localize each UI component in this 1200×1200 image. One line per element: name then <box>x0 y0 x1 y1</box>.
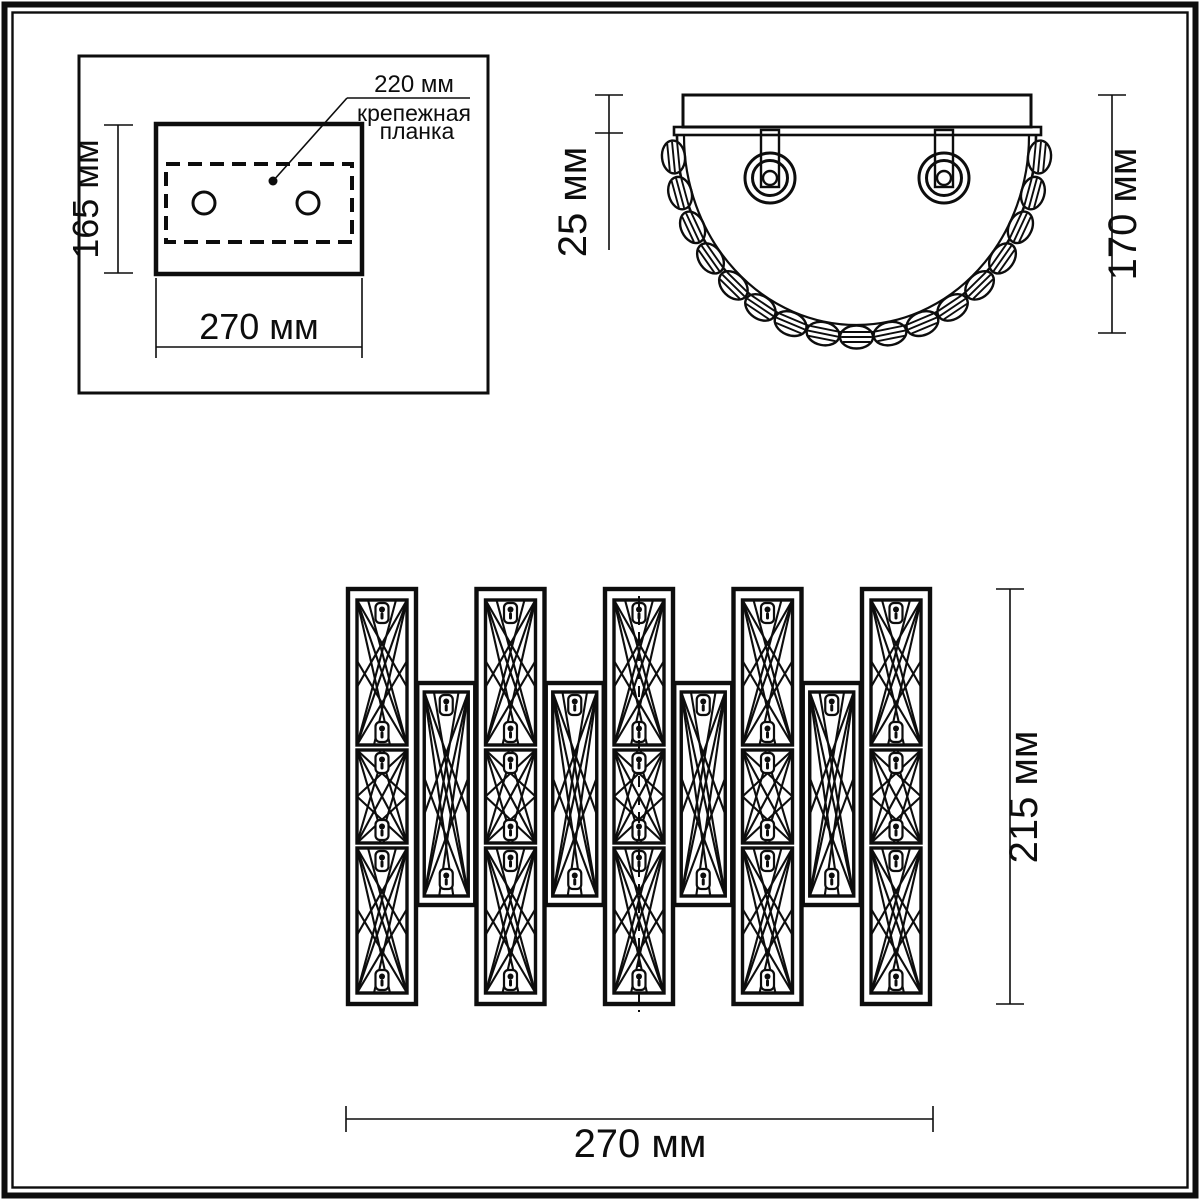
crystal-bar-tall <box>734 589 802 1004</box>
mounting-pin <box>440 869 453 889</box>
outer-page-border <box>5 5 1196 1196</box>
crystal-bead <box>1017 174 1048 212</box>
mounting-pin <box>376 851 389 871</box>
mounting-pin <box>504 722 517 742</box>
canopy-rect <box>683 95 1031 127</box>
mounting-pin <box>761 820 774 840</box>
mounting-pin <box>504 851 517 871</box>
mounting-pin <box>890 970 903 990</box>
mounting-pin <box>568 695 581 715</box>
leader-line <box>273 98 347 181</box>
mount-hole-left <box>193 192 215 214</box>
front-height-label: 215 мм <box>1002 731 1046 864</box>
crystal-bar-short <box>546 683 604 905</box>
technical-drawing: 220 мм крепежная планка 165 мм 270 мм <box>0 0 1200 1200</box>
mounting-pin <box>568 869 581 889</box>
top-view: 25 мм 170 мм <box>551 95 1145 349</box>
mounting-pin <box>825 695 838 715</box>
mounting-pin <box>504 970 517 990</box>
crystal-bead <box>665 174 696 212</box>
mounting-pin <box>761 722 774 742</box>
mounting-pin <box>376 753 389 773</box>
crystal-bar-tall <box>862 589 930 1004</box>
shade-outer-arc <box>677 136 1036 333</box>
height-dim-label: 165 мм <box>65 139 106 259</box>
crystal-bar-short <box>803 683 861 905</box>
mounting-pin <box>825 869 838 889</box>
bracket-label-line2: планка <box>380 118 455 144</box>
crystal-plate <box>810 692 854 896</box>
backplate-rect <box>156 124 362 274</box>
crystal-bead <box>840 326 873 349</box>
crystal-plate <box>553 692 597 896</box>
mounting-pin <box>504 603 517 623</box>
mounting-pin <box>440 695 453 715</box>
lamp-socket-right <box>919 130 969 203</box>
mounting-pin <box>697 869 710 889</box>
mounting-pin <box>761 603 774 623</box>
dimension-25 <box>595 95 623 250</box>
mounting-pin <box>697 695 710 715</box>
plate-thickness-label: 25 мм <box>551 147 595 258</box>
mounting-pin <box>376 722 389 742</box>
crystal-bar-tall <box>477 589 545 1004</box>
front-width-label: 270 мм <box>574 1122 707 1166</box>
mounting-pin <box>890 753 903 773</box>
mounting-pin <box>761 851 774 871</box>
mounting-pin <box>376 970 389 990</box>
mounting-strip-rect <box>674 127 1041 135</box>
inner-page-border <box>13 13 1188 1188</box>
front-view: 215 мм 270 мм <box>346 589 1046 1166</box>
mount-hole-right <box>297 192 319 214</box>
crystal-bead <box>1026 139 1052 174</box>
mounting-pin <box>761 970 774 990</box>
mount-plate-view: 220 мм крепежная планка 165 мм 270 мм <box>65 56 488 393</box>
mounting-pin <box>504 820 517 840</box>
crystal-bar-short <box>417 683 475 905</box>
mounting-pin <box>376 820 389 840</box>
mounting-pin <box>890 603 903 623</box>
mounting-pin <box>504 753 517 773</box>
mounting-pin <box>890 851 903 871</box>
mounting-pin <box>761 753 774 773</box>
mounting-pin <box>890 820 903 840</box>
dimension-165 <box>104 125 133 273</box>
crystal-plate <box>681 692 725 896</box>
crystal-bead <box>660 139 686 174</box>
crystal-beads <box>660 139 1052 348</box>
mounting-pin <box>376 603 389 623</box>
crystal-plate <box>424 692 468 896</box>
crystal-bar-short <box>674 683 732 905</box>
bracket-width-label: 220 мм <box>374 71 454 98</box>
width-dim-label: 270 мм <box>199 306 319 347</box>
depth-dim-label: 170 мм <box>1101 148 1145 281</box>
crystal-bar-tall <box>348 589 416 1004</box>
lamp-socket-left <box>745 130 795 203</box>
mounting-pin <box>890 722 903 742</box>
